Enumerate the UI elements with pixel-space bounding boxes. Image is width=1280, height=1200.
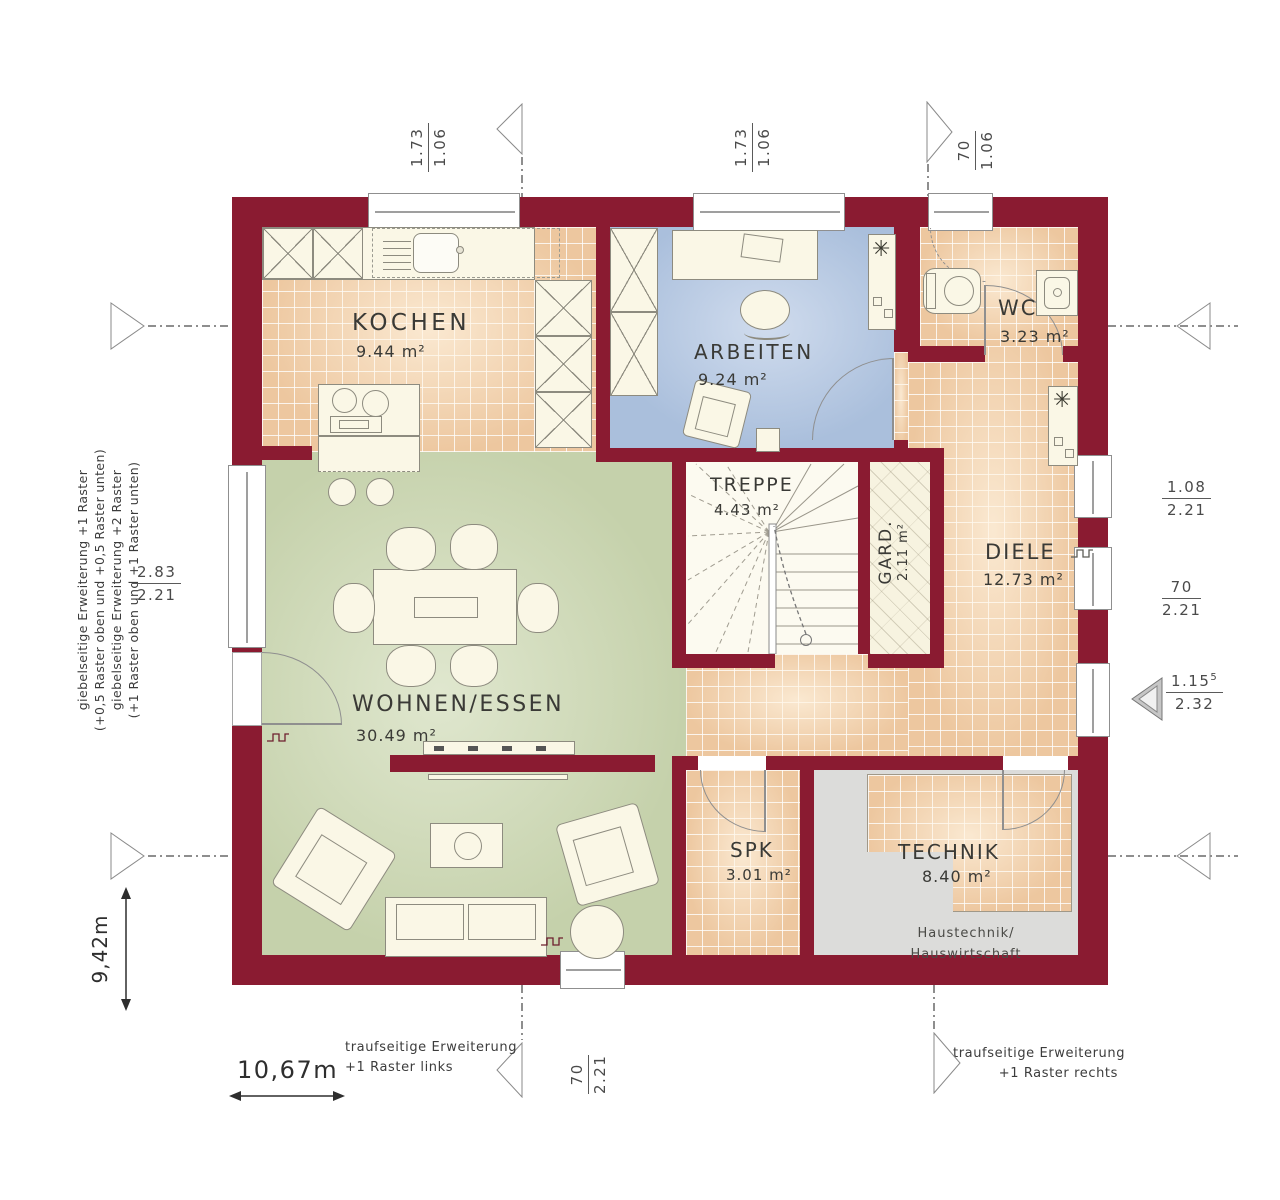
dim-top-left: 1.731.06 [408, 94, 449, 172]
kitchen-tall-cabinet [535, 280, 592, 336]
wall-segment [1078, 610, 1108, 663]
room-label-arbeiten: ARBEITEN [694, 340, 814, 364]
office-shelf [610, 228, 658, 312]
wall-segment [232, 197, 368, 227]
total-height-arrow [118, 886, 134, 1012]
grid-line [927, 164, 929, 197]
media-shelf [428, 774, 568, 780]
dining-chair [450, 524, 498, 570]
technik-note-line1: Haustechnik/ [880, 924, 1052, 945]
room-label-technik: TECHNIK [898, 840, 1000, 864]
grid-marker-top-right [926, 101, 953, 163]
wall-break-symbol [266, 730, 290, 744]
desk-chair-back [744, 326, 790, 340]
wall-segment [596, 227, 610, 462]
room-area-technik: 8.40 m² [922, 867, 992, 886]
room-area-wohnen: 30.49 m² [356, 726, 437, 745]
technik-door-leaf [1002, 770, 1004, 830]
window-diele-right-1 [1074, 455, 1112, 518]
window-arbeiten [693, 193, 845, 231]
room-area-arbeiten: 9.24 m² [698, 370, 768, 389]
grid-marker-top-left [496, 103, 523, 155]
wall-segment [672, 654, 775, 668]
desk-chair [740, 290, 790, 330]
annotation-line: traufseitige Erweiterung [953, 1044, 1118, 1064]
kitchen-tall-cabinet [535, 392, 592, 448]
plant-shelf: ✳ [1048, 386, 1078, 466]
room-area-wc: 3.23 m² [1000, 327, 1070, 346]
window-wc [928, 193, 993, 231]
dining-chair [386, 645, 436, 687]
dim-right-3: 1.1552.32 [1166, 672, 1223, 713]
entry-door-right [1076, 663, 1110, 737]
technik-note-line2: Hauswirtschaft [880, 945, 1052, 966]
dim-top-mid: 1.731.06 [732, 94, 773, 172]
wall-segment [1078, 227, 1108, 455]
wall-segment [908, 346, 985, 362]
total-width-arrow [228, 1088, 346, 1104]
room-label-diele: DIELE [985, 540, 1056, 564]
annotation-line: +1 Raster rechts [953, 1064, 1118, 1084]
dim-top-right: 701.06 [955, 98, 996, 170]
wall-segment [845, 197, 928, 227]
gard-area: 2.11 m² [896, 470, 911, 634]
room-label-treppe: TREPPE [710, 474, 794, 496]
dim-left: 2.832.21 [132, 563, 181, 604]
sofa [385, 897, 547, 957]
total-height-label: 9,42m [88, 886, 112, 1012]
room-area-spk: 3.01 m² [726, 866, 792, 884]
wall-segment [232, 726, 262, 955]
toilet [923, 268, 981, 314]
dining-table [373, 569, 517, 645]
wall-segment [672, 756, 698, 770]
wall-segment [1078, 518, 1108, 547]
office-shelf [610, 312, 658, 396]
wall-segment [672, 770, 686, 955]
annotation-line: giebelseitige Erweiterung +1 Raster [74, 436, 91, 744]
arbeiten-door-leaf [892, 358, 894, 440]
annotation-line: giebelseitige Erweiterung +2 Raster [108, 436, 125, 744]
cooktop-burner [362, 390, 389, 417]
kitchen-tall-cabinet [535, 336, 592, 392]
room-label-kochen: KOCHEN [352, 310, 470, 336]
wall-segment [262, 446, 312, 460]
bar-stool [366, 478, 394, 506]
room-area-treppe: 4.43 m² [714, 501, 780, 519]
annotation-line: traufseitige Erweiterung [345, 1038, 517, 1058]
total-height-value: 9,42m [88, 915, 112, 984]
terrace-door-leaf [262, 723, 342, 725]
bar-stool [328, 478, 356, 506]
diele-corridor-floor [686, 654, 908, 756]
grid-marker-left-2 [110, 832, 145, 880]
plant-icon: ✳ [872, 239, 890, 261]
dining-chair [450, 645, 498, 687]
wall-segment [894, 227, 920, 352]
wall-segment [232, 955, 560, 985]
door-direction-marker [1130, 676, 1164, 722]
tv-partition-wall [390, 755, 655, 772]
total-width-label: 10,67m [237, 1056, 338, 1084]
oven [330, 416, 382, 433]
wall-break-symbol [1070, 546, 1094, 560]
wc-sink [1036, 270, 1078, 316]
sideboard [423, 741, 575, 755]
window-kitchen [368, 193, 520, 231]
wall-segment [868, 654, 944, 668]
wall-segment [858, 462, 870, 654]
grid-line [148, 855, 232, 857]
wall-segment [800, 770, 814, 955]
dining-chair [386, 527, 436, 571]
grid-marker-left-1 [110, 302, 145, 350]
room-label-gard: GARD. 2.11 m² [876, 470, 911, 634]
spk-door-leaf [764, 770, 766, 832]
annotation-bottom-right: traufseitige Erweiterung +1 Raster recht… [953, 1044, 1118, 1083]
side-table [570, 905, 624, 959]
wall-segment [1068, 756, 1078, 770]
kitchen-upper-cabinet-dashed [372, 228, 560, 278]
floor-plan: ✳ ✳ KOCHEN 9.44 m² ARBEITEN 9.24 m² WC 3… [0, 0, 1280, 1200]
kitchen-cabinet [263, 228, 313, 279]
wall-segment [672, 462, 686, 654]
plant-icon: ✳ [1053, 390, 1071, 412]
wall-segment [894, 440, 908, 462]
dim-right-1: 1.082.21 [1162, 478, 1211, 519]
wall-segment [1063, 346, 1078, 362]
room-label-wc: WC [998, 296, 1037, 320]
grid-line [521, 157, 523, 197]
dim-right-2: 702.21 [1162, 578, 1201, 619]
side-cube [756, 428, 780, 452]
grid-line [148, 325, 232, 327]
total-width-value: 10,67m [237, 1056, 338, 1084]
kitchen-island-bar [318, 436, 420, 472]
annotation-bottom-left: traufseitige Erweiterung +1 Raster links [345, 1038, 517, 1077]
annotation-line: (+0,5 Raster oben und +0,5 Raster unten) [91, 436, 108, 744]
grid-line [521, 985, 523, 1040]
coffee-table [430, 823, 503, 868]
wall-segment [520, 197, 693, 227]
grid-line [1108, 325, 1238, 327]
technik-note: Haustechnik/ Hauswirtschaft [880, 924, 1052, 966]
grid-line [933, 985, 935, 1030]
grid-line [1108, 855, 1238, 857]
wall-segment [1078, 737, 1108, 955]
kitchen-cabinet [313, 228, 363, 279]
wall-break-symbol [540, 934, 564, 948]
room-label-spk: SPK [730, 838, 774, 862]
wall-segment [766, 756, 1003, 770]
dining-chair [333, 583, 375, 633]
wall-segment [993, 197, 1108, 227]
wc-door-leaf [984, 285, 986, 355]
gard-name: GARD. [876, 470, 896, 634]
terrace-door-gap [232, 652, 262, 726]
room-area-diele: 12.73 m² [983, 570, 1064, 589]
dim-bottom: 702.21 [568, 1030, 609, 1094]
plant-shelf: ✳ [868, 234, 896, 330]
annotation-line: +1 Raster links [345, 1058, 517, 1078]
dining-chair [517, 583, 559, 633]
cooktop-burner [332, 388, 357, 413]
wall-segment [930, 462, 944, 654]
window-wohnen-left [228, 465, 266, 648]
wall-segment [232, 227, 262, 465]
room-label-wohnen: WOHNEN/ESSEN [352, 692, 564, 717]
arbeiten-door-floor [894, 352, 908, 448]
room-area-kochen: 9.44 m² [356, 342, 426, 361]
